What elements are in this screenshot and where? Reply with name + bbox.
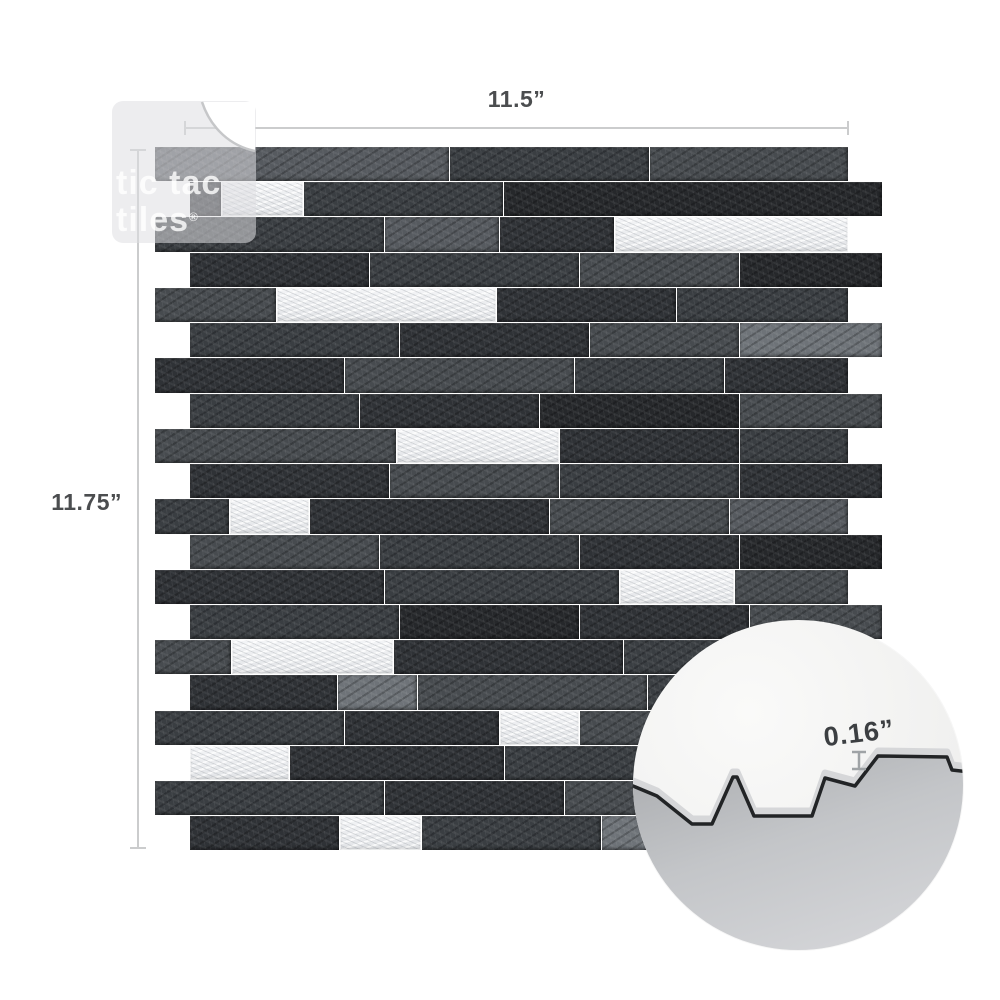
slate-brick — [190, 535, 379, 569]
slate-brick — [190, 816, 339, 850]
slate-brick — [390, 464, 559, 498]
slate-brick — [740, 429, 848, 463]
slate-brick — [190, 323, 399, 357]
silver-brick — [232, 640, 393, 674]
slate-brick — [740, 394, 882, 428]
slate-brick — [560, 429, 739, 463]
slate-brick — [345, 358, 574, 393]
product-image: 11.5” 11.75” tic tac tiles® — [0, 0, 1000, 1000]
slate-brick — [190, 464, 389, 498]
slate-brick — [190, 605, 399, 639]
slate-brick — [550, 499, 729, 534]
slate-brick — [400, 323, 589, 357]
slate-brick — [385, 217, 499, 252]
slate-brick — [740, 535, 882, 569]
slate-brick — [422, 816, 601, 850]
slate-brick — [418, 675, 647, 710]
slate-brick — [338, 675, 417, 710]
brand-logo: tic tac tiles® — [116, 166, 221, 237]
slate-brick — [730, 499, 848, 534]
slate-brick — [310, 499, 549, 534]
slate-brick — [504, 182, 882, 216]
slate-brick — [725, 358, 848, 393]
slate-brick — [560, 464, 739, 498]
slate-brick — [540, 394, 739, 428]
slate-brick — [580, 535, 739, 569]
slate-brick — [155, 429, 396, 463]
silver-brick — [615, 217, 848, 252]
slate-brick — [590, 323, 739, 357]
slate-brick — [155, 711, 344, 745]
slate-brick — [360, 394, 539, 428]
edge-cross-section: 0.16” — [633, 620, 963, 950]
slate-brick — [394, 640, 623, 674]
silver-brick — [230, 499, 309, 534]
slate-brick — [740, 323, 882, 357]
slate-brick — [650, 147, 848, 181]
registered-trademark-symbol: ® — [189, 210, 198, 224]
slate-brick — [155, 781, 384, 815]
slate-brick — [575, 358, 724, 393]
thickness-dimension-label: 0.16” — [822, 714, 896, 752]
slate-brick — [385, 570, 619, 604]
slate-brick — [497, 288, 676, 322]
slate-brick — [190, 253, 369, 287]
slate-brick — [155, 358, 344, 393]
slate-brick — [190, 675, 337, 710]
silver-brick — [397, 429, 559, 463]
slate-brick — [155, 640, 231, 674]
silver-brick — [277, 288, 496, 322]
silver-brick — [620, 570, 734, 604]
slate-brick — [345, 711, 499, 745]
brand-logo-line1: tic tac — [116, 166, 221, 200]
thickness-detail-inset: 0.16” — [633, 620, 963, 950]
slate-brick — [677, 288, 848, 322]
slate-brick — [580, 253, 739, 287]
slate-brick — [740, 253, 882, 287]
slate-brick — [400, 605, 579, 639]
slate-brick — [500, 217, 614, 252]
slate-brick — [385, 781, 564, 815]
slate-brick — [155, 288, 276, 322]
silver-brick — [340, 816, 421, 850]
slate-brick — [370, 253, 579, 287]
slate-brick — [190, 394, 359, 428]
slate-brick — [290, 746, 504, 780]
silver-brick — [500, 711, 579, 745]
slate-brick — [155, 570, 384, 604]
slate-brick — [155, 499, 229, 534]
silver-brick — [190, 746, 289, 780]
slate-brick — [380, 535, 579, 569]
brand-logo-line2: tiles® — [116, 200, 221, 237]
slate-brick — [735, 570, 848, 604]
slate-brick — [304, 182, 503, 216]
lower-tile-edge-region — [633, 756, 963, 950]
slate-brick — [450, 147, 649, 181]
slate-brick — [740, 464, 882, 498]
